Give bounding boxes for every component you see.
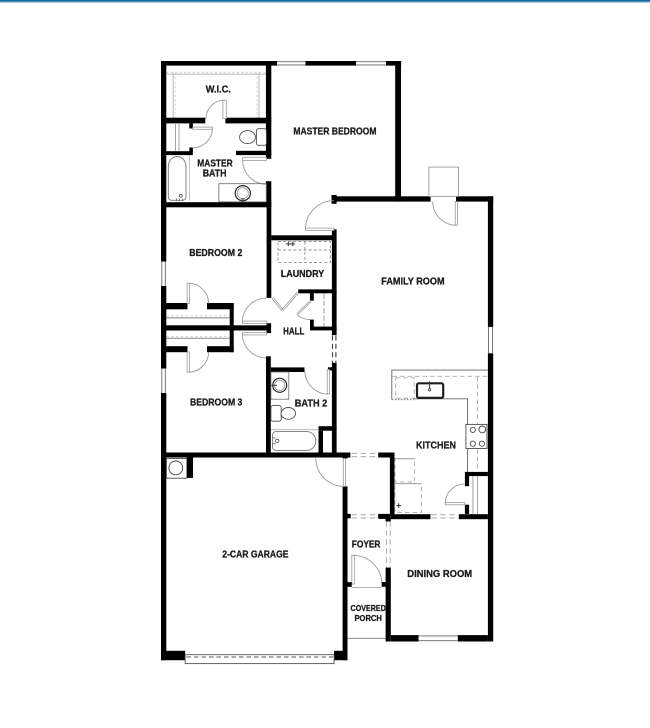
svg-text:LAUNDRY: LAUNDRY (281, 269, 325, 280)
svg-text:BATH: BATH (203, 169, 227, 180)
svg-text:BEDROOM 2: BEDROOM 2 (189, 248, 242, 259)
svg-text:KITCHEN: KITCHEN (416, 441, 456, 452)
svg-text:BEDROOM 3: BEDROOM 3 (190, 398, 243, 409)
svg-text:MASTER BEDROOM: MASTER BEDROOM (293, 126, 376, 137)
svg-text:FOYER: FOYER (352, 539, 381, 550)
svg-text:BATH 2: BATH 2 (295, 399, 328, 410)
svg-text:DINING ROOM: DINING ROOM (407, 569, 472, 580)
svg-text:HALL: HALL (283, 326, 304, 337)
svg-text:FAMILY ROOM: FAMILY ROOM (381, 276, 444, 287)
svg-text:2-CAR GARAGE: 2-CAR GARAGE (222, 550, 289, 561)
svg-text:W.I.C.: W.I.C. (206, 84, 231, 95)
svg-text:COVERED: COVERED (351, 604, 386, 613)
svg-text:PORCH: PORCH (354, 614, 382, 623)
